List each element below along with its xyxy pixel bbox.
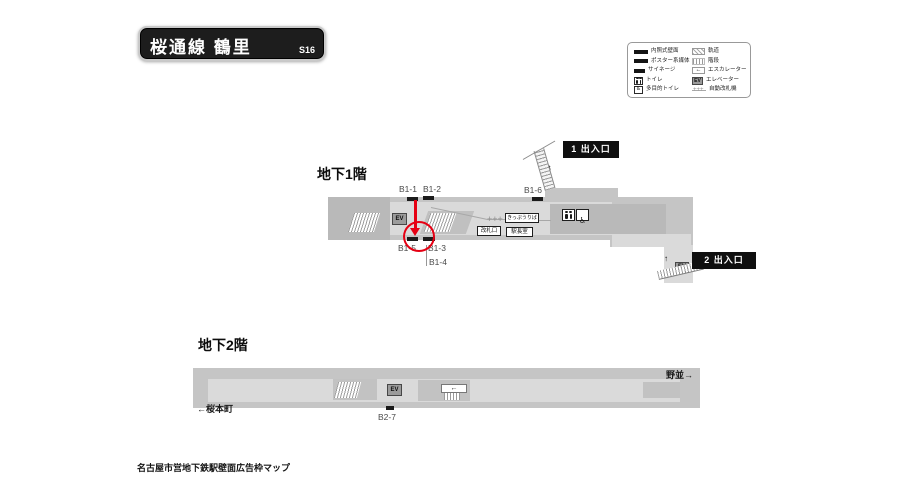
stairs-icon [692,58,705,65]
ticket-gate-icon: +++ [692,87,706,94]
legend-label: エレベーター [706,78,739,84]
legend-label: エスカレーター [708,68,747,74]
b1-floor-title: 地下1階 [317,167,367,181]
legend-column-left: 内照式壁面 ポスター系媒体 サイネージ トイレ ♿ 多目的トイレ [634,47,690,95]
highlight-circle [403,221,435,252]
legend-item: ♿ 多目的トイレ [634,85,690,95]
b1-elevator-icon: EV [392,213,407,225]
position-label-b1-4: B1-4 [429,258,447,267]
legend-item: +++ 自動改札機 [692,85,747,95]
legend-label: サイネージ [648,68,675,74]
legend-label: 階段 [708,59,719,65]
accessible-toilet-icon: ♿ [634,86,643,94]
exit2-up-arrow-icon: ↑ [664,255,668,263]
position-label-b2-7: B2-7 [378,413,396,422]
legend-label: 内照式壁面 [651,49,679,55]
legend-item: トイレ [634,76,690,86]
legend-label: 軌道 [708,49,719,55]
b2-elevator-icon: EV [387,384,402,396]
position-label-b1-1: B1-1 [399,185,417,194]
ad-position-mark-b2-7 [386,406,394,410]
legend-item: ← エスカレーター [692,66,747,76]
legend-label: トイレ [646,78,663,84]
poster-media-icon [634,59,648,63]
line-station-title: 桜通線 鶴里 [150,33,252,58]
legend-item: EV エレベーター [692,76,747,86]
position-label-b1-2: B1-2 [423,185,441,194]
elevator-icon: EV [692,77,703,85]
b2-stairs-icon [334,382,361,398]
direction-label-sakurahommachi: ←桜本町 [197,405,233,414]
b1-toilet-icon [562,209,575,221]
escalator-icon: ← [692,67,705,74]
legend-item: ポスター系媒体 [634,57,690,67]
exit1-up-arrow-icon: ↑ [547,164,553,173]
exit2-badge: 2 出入口 [692,252,756,269]
legend-label: 自動改札機 [709,87,737,93]
legend-item: 軌道 [692,47,747,57]
b2-escalator-stairs-icon [444,393,460,400]
toilet-icon [634,77,643,85]
exit1-badge: 1 出入口 [563,141,619,158]
station-ad-map: 桜通線 鶴里 S16 内照式壁面 ポスター系媒体 サイネージ トイレ ♿ [0,0,919,491]
position-label-b1-6: B1-6 [524,186,542,195]
gate-box: 改札口 [477,226,501,236]
map-caption: 名古屋市営地下鉄駅壁面広告枠マップ [137,461,290,474]
b1-accessible-toilet-icon: ♿ [576,209,589,221]
station-code: S16 [299,45,315,55]
legend-column-right: 軌道 階段 ← エスカレーター EV エレベーター +++ 自動改札機 [692,47,747,95]
legend-item: 階段 [692,57,747,67]
station-title-badge: 桜通線 鶴里 S16 [138,26,326,61]
signage-icon [634,69,645,73]
b2-right-room [643,382,680,398]
b1-exit1-lobby [545,188,618,200]
b1-lower-walkway [612,234,691,247]
direction-label-nonami: 野並→ [666,371,693,380]
wall-media-icon [634,50,648,54]
ad-position-mark-b1-6 [532,197,543,201]
b2-floor-title: 地下2階 [198,338,248,352]
legend: 内照式壁面 ポスター系媒体 サイネージ トイレ ♿ 多目的トイレ 軌道 [627,42,751,98]
legend-label: ポスター系媒体 [651,59,690,65]
track-icon [692,48,705,55]
legend-item: サイネージ [634,66,690,76]
ticket-office-box: きっぷうりば [505,213,539,223]
b2-escalator-icon: ← [441,384,467,393]
legend-label: 多目的トイレ [646,87,679,93]
station-office-box: 駅長室 [506,227,533,237]
ad-position-mark-b1-2 [423,196,434,200]
legend-item: 内照式壁面 [634,47,690,57]
